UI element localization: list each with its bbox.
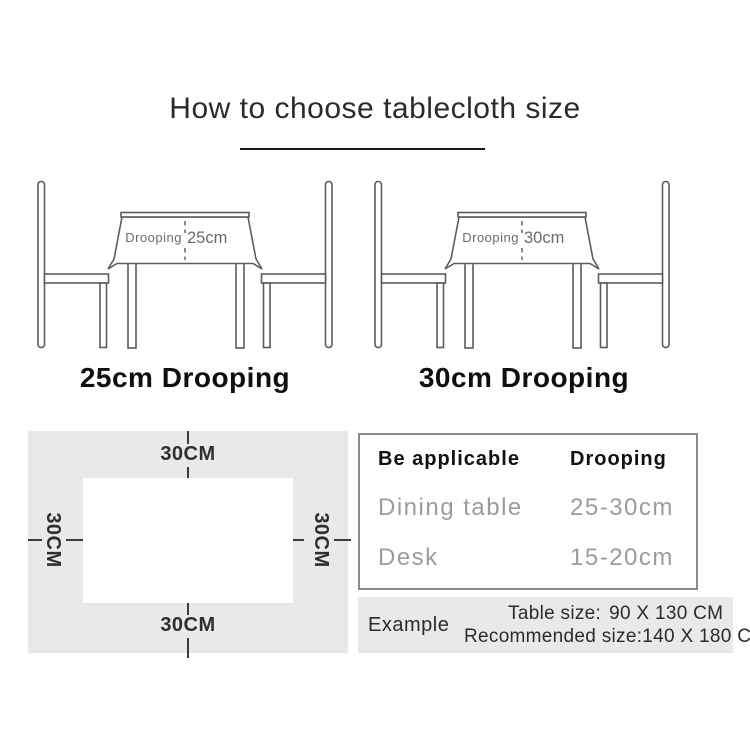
title-underline	[240, 148, 485, 150]
right-chair-icon	[599, 182, 670, 348]
left-chair-icon	[375, 182, 446, 348]
header-be-applicable: Be applicable	[378, 448, 570, 471]
dim-right: 30CM	[311, 509, 331, 571]
drooping-value: 25cm	[187, 229, 227, 247]
caption-30cm-drooping: 30cm Drooping	[362, 362, 686, 402]
top-tick-lower	[187, 467, 189, 478]
row-name: Dining table	[378, 494, 570, 522]
drooping-word: Drooping	[462, 230, 519, 245]
drooping-value: 30cm	[524, 229, 564, 247]
table-size-value: 90 X 130 CM	[609, 603, 723, 624]
table-row: Desk 15-20cm	[378, 544, 690, 572]
right-tick-inner	[293, 539, 304, 541]
table-with-chairs-icon: Drooping 25cm	[25, 178, 345, 353]
drooping-word: Drooping	[125, 230, 182, 245]
left-tick-inner	[66, 539, 83, 541]
right-tick-outer	[334, 539, 351, 541]
infographic-canvas: How to choose tablecloth size	[0, 0, 750, 750]
example-lines: Table size:90 X 130 CM Recommended size:…	[464, 603, 750, 648]
table-row: Dining table 25-30cm	[378, 494, 690, 522]
row-value: 25-30cm	[570, 494, 690, 522]
recommended-value: 140 X 180 CM	[642, 626, 750, 647]
dim-top: 30CM	[138, 444, 238, 464]
right-chair-icon	[262, 182, 333, 348]
illustration-25cm-drooping: Drooping 25cm	[25, 178, 345, 353]
page-title: How to choose tablecloth size	[0, 92, 750, 126]
table-surface-rect	[83, 478, 293, 603]
example-label: Example	[368, 614, 464, 637]
row-name: Desk	[378, 544, 570, 572]
recommended-label: Recommended size:	[464, 626, 642, 647]
left-tick-outer	[28, 539, 42, 541]
drooping-spec-table: Be applicable Drooping Dining table 25-3…	[358, 433, 698, 590]
row-value: 15-20cm	[570, 544, 690, 572]
example-box: Example Table size:90 X 130 CM Recommend…	[358, 597, 733, 653]
bottom-tick-lower	[187, 638, 189, 658]
example-table-size-line: Table size:90 X 130 CM	[508, 603, 723, 625]
example-recommended-line: Recommended size:140 X 180 CM	[464, 626, 750, 648]
table-size-label: Table size:	[508, 603, 601, 624]
caption-25cm-drooping: 25cm Drooping	[25, 362, 345, 402]
left-chair-icon	[38, 182, 109, 348]
dim-left: 30CM	[43, 509, 63, 571]
table-with-chairs-icon: Drooping 30cm	[362, 178, 682, 353]
size-diagram-panel: 30CM 30CM 30CM 30CM	[28, 431, 348, 653]
spec-table-header-row: Be applicable Drooping	[378, 448, 690, 471]
dim-bottom: 30CM	[138, 615, 238, 635]
illustration-30cm-drooping: Drooping 30cm	[362, 178, 682, 353]
header-drooping: Drooping	[570, 448, 690, 471]
